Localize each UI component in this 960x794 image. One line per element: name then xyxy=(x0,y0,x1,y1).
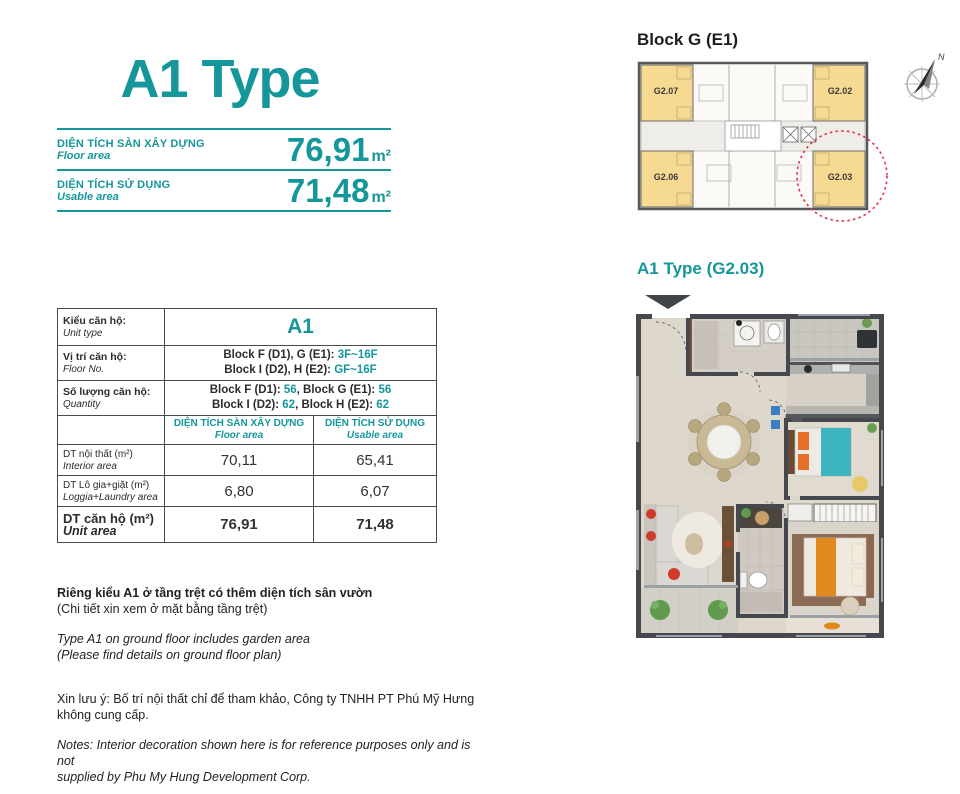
unit-label-g206: G2.06 xyxy=(654,172,679,182)
col-header-usable-area: DIỆN TÍCH SỬ DỤNG Usable area xyxy=(314,416,437,445)
loggia-usable-value: 6,07 xyxy=(314,476,437,507)
interior-usable-value: 65,41 xyxy=(314,445,437,476)
table-row-floor-no: Vị trí căn hộ: Floor No. Block F (D1), G… xyxy=(58,346,437,381)
table-row-interior-area: DT nội thất (m²) Interior area 70,11 65,… xyxy=(58,445,437,476)
unit-floor-value: 76,91 xyxy=(165,507,314,543)
usable-area-label-vi: DIỆN TÍCH SỬ DỤNG xyxy=(57,179,170,191)
page-title: A1 Type xyxy=(40,48,400,110)
unit-type-value: A1 xyxy=(165,309,437,346)
floor-plan-title: A1 Type (G2.03) xyxy=(637,259,764,279)
table-row-unit-area: DT căn hộ (m²) Unit area 76,91 71,48 xyxy=(58,507,437,543)
disclaimer-note: Xin lưu ý: Bố trí nội thất chỉ để tham k… xyxy=(57,691,477,785)
unit-label-g207: G2.07 xyxy=(654,86,679,96)
floor-plan-image xyxy=(636,314,884,638)
usable-area-label-en: Usable area xyxy=(57,191,170,203)
block-plan-title: Block G (E1) xyxy=(637,30,738,50)
interior-floor-value: 70,11 xyxy=(165,445,314,476)
floor-area-row: DIỆN TÍCH SÀN XÂY DỰNG Floor area 76,91m… xyxy=(57,128,391,169)
floor-no-value: Block F (D1), G (E1): 3F~16F Block I (D2… xyxy=(165,346,437,381)
svg-text:N: N xyxy=(938,52,945,62)
floor-area-label-en: Floor area xyxy=(57,150,205,162)
compass-icon: N xyxy=(896,46,954,114)
table-row-quantity: Số lượng căn hộ: Quantity Block F (D1): … xyxy=(58,381,437,416)
unit-usable-value: 71,48 xyxy=(314,507,437,543)
quantity-value: Block F (D1): 56, Block G (E1): 56 Block… xyxy=(165,381,437,416)
brochure-page: A1 Type DIỆN TÍCH SÀN XÂY DỰNG Floor are… xyxy=(0,0,960,794)
floor-area-label-vi: DIỆN TÍCH SÀN XÂY DỰNG xyxy=(57,138,205,150)
loggia-floor-value: 6,80 xyxy=(165,476,314,507)
spec-table: Kiểu căn hộ: Unit type A1 Vị trí căn hộ:… xyxy=(57,308,437,543)
block-plan-image: G2.07 G2.02 G2.06 G2.03 xyxy=(637,57,869,215)
table-row-loggia-area: DT Lô gia+giặt (m²) Loggia+Laundry area … xyxy=(58,476,437,507)
area-summary: DIỆN TÍCH SÀN XÂY DỰNG Floor area 76,91m… xyxy=(57,128,391,212)
entry-marker-icon xyxy=(645,295,691,309)
usable-area-row: DIỆN TÍCH SỬ DỤNG Usable area 71,48m² xyxy=(57,169,391,212)
table-row-unit-type: Kiểu căn hộ: Unit type A1 xyxy=(58,309,437,346)
unit-label-g203: G2.03 xyxy=(828,172,853,182)
floor-area-value: 76,91m² xyxy=(287,131,391,169)
garden-note: Riêng kiểu A1 ở tầng trệt có thêm diện t… xyxy=(57,585,417,663)
unit-label-g202: G2.02 xyxy=(828,86,853,96)
table-row-col-headers: DIỆN TÍCH SÀN XÂY DỰNG Floor area DIỆN T… xyxy=(58,416,437,445)
col-header-floor-area: DIỆN TÍCH SÀN XÂY DỰNG Floor area xyxy=(165,416,314,445)
usable-area-value: 71,48m² xyxy=(287,172,391,210)
